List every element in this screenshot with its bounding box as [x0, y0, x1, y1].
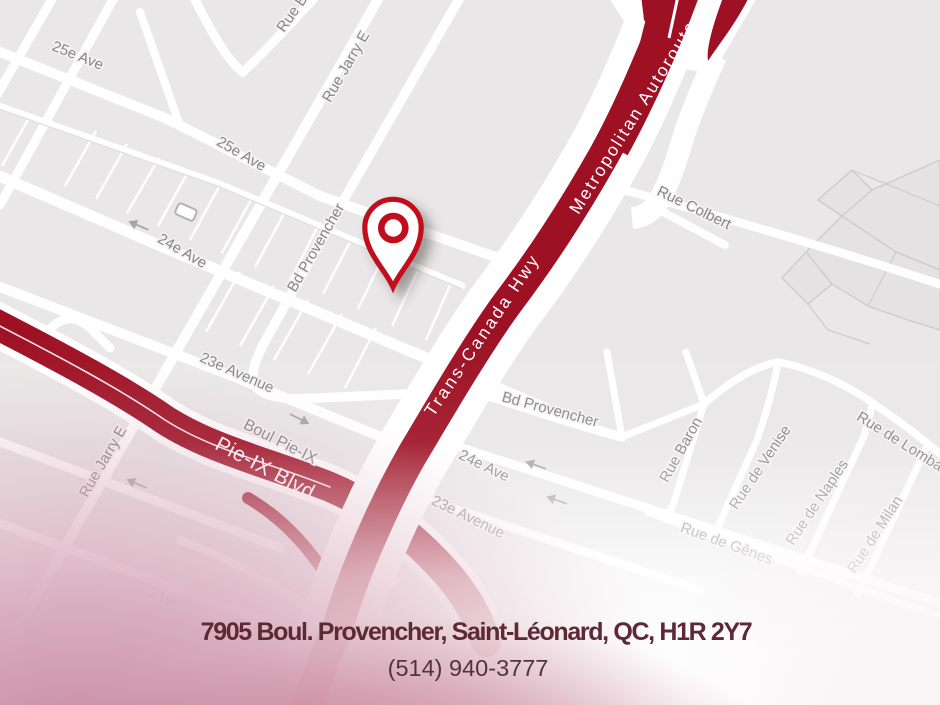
svg-text:(514) 940-3777: (514) 940-3777 [388, 655, 549, 681]
svg-text:7905 Boul. Provencher, Saint-L: 7905 Boul. Provencher, Saint-Léonard, QC… [201, 618, 752, 646]
